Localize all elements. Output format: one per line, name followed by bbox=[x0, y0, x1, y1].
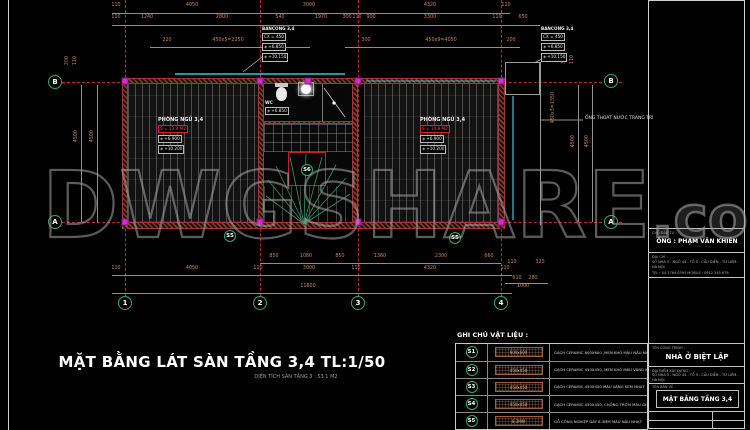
dim-label: 4500 bbox=[586, 135, 591, 147]
room-area: S = 13.9 M2 bbox=[158, 125, 188, 134]
level-marker-icon: ◈ bbox=[543, 54, 546, 61]
dim-label: 4320 bbox=[424, 267, 436, 272]
balcony-center-labels: BANCONG 3,4 CX = 450 ◈+6.850 ◈+10.150 bbox=[262, 26, 294, 62]
grid-bubble-B-left: B bbox=[48, 75, 62, 89]
dim-line bbox=[112, 293, 512, 294]
legend-row: S1 600x600 GẠCH CERAMIC 600X600 ,MEN KHÔ… bbox=[456, 344, 647, 361]
cad-floor-plan-sheet: 110 4050 3000 4320 110 110 1240 2800 540… bbox=[0, 0, 750, 430]
dim-label: 1240 bbox=[141, 16, 153, 21]
owner-name: ÔNG : PHẠM VĂN KHIÊN bbox=[656, 238, 737, 245]
legend-swatch: 450x450 bbox=[488, 396, 550, 412]
dim-label: 220 bbox=[162, 39, 171, 44]
site-text: SỐ NHÀ 5 - NGÕ 44 - TỔ 5 - CẦU DIỄN - TỪ… bbox=[652, 373, 742, 382]
dim-label: 900 bbox=[366, 16, 375, 21]
dim-label: 110 bbox=[507, 261, 516, 266]
legend-swatch: 450x450 bbox=[488, 379, 550, 395]
dim-label: 110 bbox=[253, 267, 262, 272]
balcony-name: BANCONG 3,4 bbox=[262, 26, 294, 31]
balcony-right-labels: BANCONG 3,4 CX = 450 ◈+6.850 ◈+10.150 bbox=[541, 26, 573, 62]
address-label: ĐỊA CHỈ : bbox=[652, 255, 668, 259]
owner-label: CHỦ ĐẦU TƯ : bbox=[652, 231, 677, 235]
column bbox=[257, 78, 264, 85]
level-marker-icon: ◈ bbox=[267, 108, 270, 115]
dim-line bbox=[578, 85, 579, 222]
level-marker-icon: ◈ bbox=[543, 44, 546, 51]
dim-label: 1080 bbox=[300, 255, 312, 260]
dim-label: 200 bbox=[506, 39, 515, 44]
legend-table: S1 600x600 GẠCH CERAMIC 600X600 ,MEN KHÔ… bbox=[455, 343, 648, 430]
legend-title: GHI CHÚ VẬT LIỆU : bbox=[457, 332, 648, 339]
dim-label: 200 bbox=[66, 56, 71, 65]
dim-label: 660 bbox=[484, 255, 493, 260]
level-tag: ◈+6.900 bbox=[158, 135, 182, 144]
title-block-divider bbox=[648, 343, 745, 344]
dim-label: 4050 bbox=[186, 4, 198, 9]
finish-tag-s5-left: S5 bbox=[224, 230, 236, 242]
level-tag: ◈+10.150 bbox=[541, 53, 567, 62]
finish-tag-s6-stair: S6 bbox=[301, 164, 313, 176]
balcony-cx: CX = 450 bbox=[262, 33, 286, 42]
dim-label: 3300 bbox=[424, 16, 436, 21]
grid-bubble-3: 3 bbox=[351, 296, 365, 310]
column bbox=[305, 78, 312, 85]
legend-tag: S2 bbox=[456, 362, 488, 378]
dim-label: 3000 bbox=[303, 267, 315, 272]
dim-line bbox=[345, 47, 520, 48]
legend-row: S4 450x450 GẠCH CERAMIC 450X450, CHỐNG T… bbox=[456, 395, 647, 412]
dim-line bbox=[260, 263, 501, 264]
address-text: SỐ NHÀ 5 - NGÕ 44 - TỔ 5 - CẦU DIỄN - TỪ… bbox=[652, 260, 742, 269]
phone-text: TEL : 04.3764.0595 MOBILE : 0912.345.678 bbox=[652, 271, 729, 275]
dim-line bbox=[112, 275, 512, 276]
legend-desc: GẠCH CERAMIC 450X450, CHỐNG TRƠN MÀU GHI… bbox=[550, 402, 647, 407]
dim-label: 4500 bbox=[75, 130, 80, 142]
dim-label: 4500 bbox=[572, 135, 577, 147]
drawing-name-label: TÊN BẢN VẼ : bbox=[652, 385, 676, 389]
room-name: PHÒNG NGỦ 3,4 bbox=[158, 117, 203, 123]
grid-bubble-4: 4 bbox=[494, 296, 508, 310]
legend-desc: GỖ CÔNG NGHIỆP DÀY 8.3MM MÀU NÂU NHẠT bbox=[550, 419, 647, 424]
dim-label: 450x5=2250 bbox=[212, 39, 243, 44]
title-block-divider bbox=[648, 420, 745, 421]
column bbox=[498, 219, 505, 226]
dim-label: 450x9=4050 bbox=[425, 39, 456, 44]
dim-line bbox=[97, 85, 98, 222]
dim-label: 110 bbox=[351, 267, 360, 272]
bedroom-left-labels: PHÒNG NGỦ 3,4 S = 13.9 M2 ◈+6.900 ◈+10.2… bbox=[158, 117, 203, 154]
title-block-divider bbox=[648, 366, 745, 367]
finish-tag-s5-right: S5 bbox=[449, 232, 461, 244]
dim-label: 850 bbox=[335, 255, 344, 260]
dim-label: 2300 bbox=[435, 255, 447, 260]
legend-tag: S4 bbox=[456, 396, 488, 412]
dim-label: 110 bbox=[111, 4, 120, 9]
level-tag: ◈+10.200 bbox=[158, 145, 184, 154]
dim-label: 110 bbox=[352, 16, 361, 21]
dim-label: 300 bbox=[361, 39, 370, 44]
column bbox=[257, 219, 264, 226]
legend-tag: S5 bbox=[456, 413, 488, 429]
dim-line bbox=[592, 85, 593, 222]
level-tag: ◈+10.150 bbox=[262, 53, 288, 62]
title-block-divider bbox=[648, 277, 745, 278]
dim-label: 610 bbox=[512, 277, 521, 282]
dim-label: 110 bbox=[500, 267, 509, 272]
level-tag: ◈+10.200 bbox=[420, 145, 446, 154]
dim-label: 110 bbox=[111, 267, 120, 272]
dim-label: 540 bbox=[275, 16, 284, 21]
pipe-note: ỐNG THOÁT NƯỚC TRANG TRÍ bbox=[585, 116, 654, 121]
material-legend: GHI CHÚ VẬT LIỆU : S1 600x600 GẠCH CERAM… bbox=[455, 330, 648, 430]
dim-label: 110 bbox=[111, 16, 120, 21]
legend-swatch: 8.3MM bbox=[488, 413, 550, 429]
dim-line bbox=[112, 13, 510, 14]
column bbox=[355, 219, 362, 226]
dim-line bbox=[81, 85, 82, 222]
drawing-subtitle: DIỆN TÍCH SÀN TẦNG 3 : 53.1 M2 bbox=[254, 374, 337, 380]
title-block-divider bbox=[648, 383, 745, 384]
level-marker-icon: ◈ bbox=[160, 136, 163, 143]
room-name: PHÒNG NGỦ 3,4 bbox=[420, 117, 465, 123]
dim-label: 110 bbox=[74, 56, 79, 65]
legend-row: S3 450x450 GẠCH CERAMIC 450X450 MÀU VÀNG… bbox=[456, 378, 647, 395]
legend-tag: S3 bbox=[456, 379, 488, 395]
title-block-divider bbox=[648, 228, 745, 229]
level-marker-icon: ◈ bbox=[422, 136, 425, 143]
dim-label: 320 bbox=[535, 261, 544, 266]
dim-label: 300 bbox=[342, 16, 351, 21]
project-label: TÊN CÔNG TRÌNH : bbox=[652, 346, 685, 350]
dim-label: 2800 bbox=[216, 16, 228, 21]
dim-label: 4050 bbox=[186, 267, 198, 272]
legend-tag: S1 bbox=[456, 344, 488, 361]
level-tag: ◈+6.850 bbox=[541, 43, 565, 52]
wc-labels: WC ◈+6.850 bbox=[265, 100, 289, 115]
legend-row: S2 450x450 GẠCH CERAMIC 450X450, MEN KHÔ… bbox=[456, 361, 647, 378]
legend-desc: GẠCH CERAMIC 450X450 MÀU VÀNG KEM NHẠT bbox=[550, 384, 647, 389]
legend-swatch: 600x600 bbox=[488, 344, 550, 361]
column bbox=[498, 78, 505, 85]
dim-label: 450x3=1350 bbox=[552, 92, 557, 123]
drawing-title: MẶT BẰNG LÁT SÀN TẦNG 3,4 TL:1/50 bbox=[59, 355, 386, 370]
grid-bubble-B-right: B bbox=[604, 74, 618, 88]
legend-swatch: 450x450 bbox=[488, 362, 550, 378]
project-name: NHÀ Ở BIỆT LẬP bbox=[665, 353, 728, 361]
dim-label: 4320 bbox=[424, 4, 436, 9]
dim-label: 1000 bbox=[517, 285, 529, 290]
level-marker-icon: ◈ bbox=[264, 54, 267, 61]
grid-bubble-1: 1 bbox=[118, 296, 132, 310]
level-marker-icon: ◈ bbox=[264, 44, 267, 51]
column bbox=[122, 78, 129, 85]
level-tag: ◈+6.900 bbox=[420, 135, 444, 144]
title-block-cell-divider bbox=[712, 411, 713, 429]
level-tag: ◈+6.850 bbox=[262, 43, 286, 52]
dim-label: 4500 bbox=[91, 130, 96, 142]
drawing-name-box: MẶT BẰNG TẦNG 3,4 bbox=[656, 390, 739, 408]
level-marker-icon: ◈ bbox=[160, 146, 163, 153]
grid-bubble-2: 2 bbox=[253, 296, 267, 310]
column bbox=[122, 219, 129, 226]
dim-label: 11600 bbox=[300, 285, 315, 290]
dim-label: 280 bbox=[528, 277, 537, 282]
dim-label: 3000 bbox=[303, 4, 315, 9]
legend-desc: GẠCH CERAMIC 600X600 ,MEN KHÔ MÀU NÂU NH… bbox=[550, 350, 647, 355]
room-area: S = 14.8 M2 bbox=[420, 125, 450, 134]
room-name: WC bbox=[265, 100, 289, 105]
column bbox=[355, 78, 362, 85]
bedroom-right-labels: PHÒNG NGỦ 3,4 S = 14.8 M2 ◈+6.900 ◈+10.2… bbox=[420, 117, 465, 154]
legend-desc: GẠCH CERAMIC 450X450, MEN KHÔ MÀU VÀNG K… bbox=[550, 367, 647, 372]
title-block bbox=[648, 0, 745, 429]
dim-label: 110 bbox=[501, 4, 510, 9]
dim-label: 850 bbox=[269, 255, 278, 260]
dim-line bbox=[112, 25, 540, 26]
grid-bubble-A-left: A bbox=[48, 215, 62, 229]
grid-bubble-A-right: A bbox=[604, 215, 618, 229]
level-tag: ◈+6.850 bbox=[265, 107, 289, 116]
title-block-divider bbox=[648, 252, 745, 253]
balcony-name: BANCONG 3,4 bbox=[541, 26, 573, 31]
dim-label: 1970 bbox=[315, 16, 327, 21]
balcony-cx: CX = 450 bbox=[541, 33, 565, 42]
level-marker-icon: ◈ bbox=[422, 146, 425, 153]
title-block-divider bbox=[648, 411, 745, 412]
dim-label: 650 bbox=[518, 16, 527, 21]
legend-row: S5 8.3MM GỖ CÔNG NGHIỆP DÀY 8.3MM MÀU NÂ… bbox=[456, 412, 647, 429]
dim-label: 1360 bbox=[374, 255, 386, 260]
dim-label: 110 bbox=[492, 16, 501, 21]
